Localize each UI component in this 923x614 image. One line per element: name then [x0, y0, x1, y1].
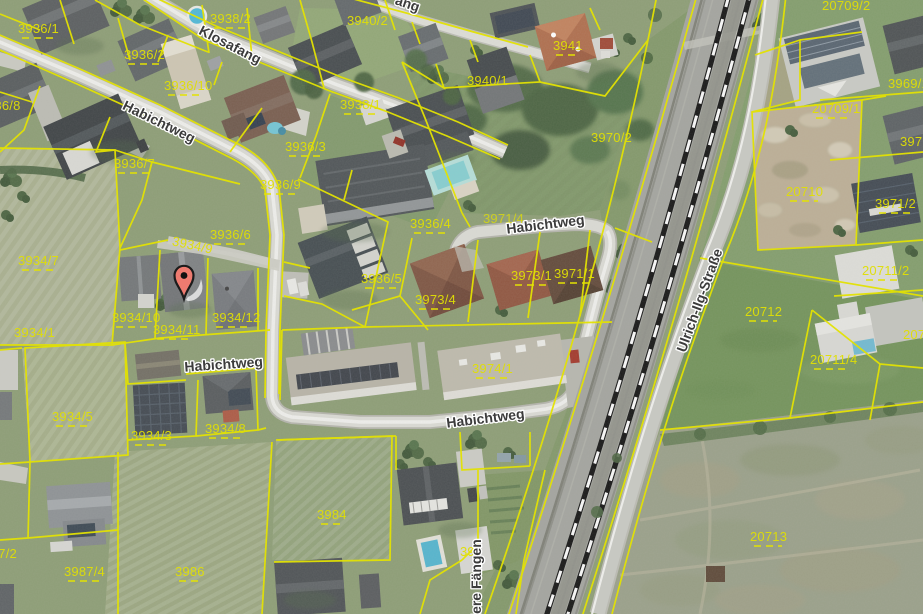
svg-text:3934/5: 3934/5: [52, 409, 93, 424]
svg-text:3936/3: 3936/3: [285, 139, 326, 154]
svg-text:3973/1: 3973/1: [511, 268, 552, 283]
svg-text:3936/10: 3936/10: [164, 78, 212, 93]
svg-text:3986: 3986: [175, 564, 205, 579]
svg-text:20711/4: 20711/4: [810, 352, 857, 367]
svg-text:3936/7: 3936/7: [114, 156, 155, 171]
svg-text:3970/2: 3970/2: [591, 130, 632, 145]
svg-text:3938/1: 3938/1: [340, 97, 381, 112]
svg-text:3936/1: 3936/1: [18, 21, 59, 36]
svg-text:20712: 20712: [745, 304, 782, 319]
svg-text:336/8: 336/8: [0, 98, 21, 113]
svg-text:20711/2: 20711/2: [862, 263, 909, 278]
svg-text:3936/4: 3936/4: [410, 216, 451, 231]
svg-text:3936/2: 3936/2: [124, 47, 165, 62]
svg-text:3941: 3941: [553, 38, 583, 53]
svg-text:3969/1: 3969/1: [888, 76, 923, 91]
svg-text:3934/1: 3934/1: [14, 325, 55, 340]
svg-text:20709/1: 20709/1: [812, 101, 860, 116]
svg-text:3936/5: 3936/5: [361, 271, 402, 286]
svg-text:3934/11: 3934/11: [153, 322, 200, 337]
svg-text:3934/3: 3934/3: [131, 428, 172, 443]
svg-text:3940/1: 3940/1: [467, 73, 508, 88]
svg-text:3940/2: 3940/2: [347, 13, 388, 28]
svg-text:3971/2: 3971/2: [875, 196, 916, 211]
svg-text:3934/7: 3934/7: [18, 253, 59, 268]
svg-text:3971/: 3971/: [900, 134, 923, 149]
svg-text:20710: 20710: [786, 184, 823, 199]
svg-text:3987/4: 3987/4: [64, 564, 105, 579]
svg-text:2071: 2071: [903, 327, 923, 342]
svg-text:20709/2: 20709/2: [822, 0, 870, 13]
svg-text:3936/9: 3936/9: [260, 177, 301, 192]
svg-text:3936/6: 3936/6: [210, 227, 251, 242]
svg-text:3934/12: 3934/12: [212, 310, 260, 325]
svg-text:3938/2: 3938/2: [210, 11, 251, 26]
svg-text:3984: 3984: [317, 507, 347, 522]
svg-text:3974/1: 3974/1: [472, 361, 513, 376]
svg-text:20713: 20713: [750, 529, 787, 544]
svg-text:3934/8: 3934/8: [205, 421, 246, 436]
svg-text:3971/1: 3971/1: [554, 266, 595, 281]
svg-text:3987/2: 3987/2: [0, 546, 17, 561]
svg-text:3973/4: 3973/4: [415, 292, 456, 307]
svg-text:Vordere Fängen: Vordere Fängen: [468, 539, 484, 614]
